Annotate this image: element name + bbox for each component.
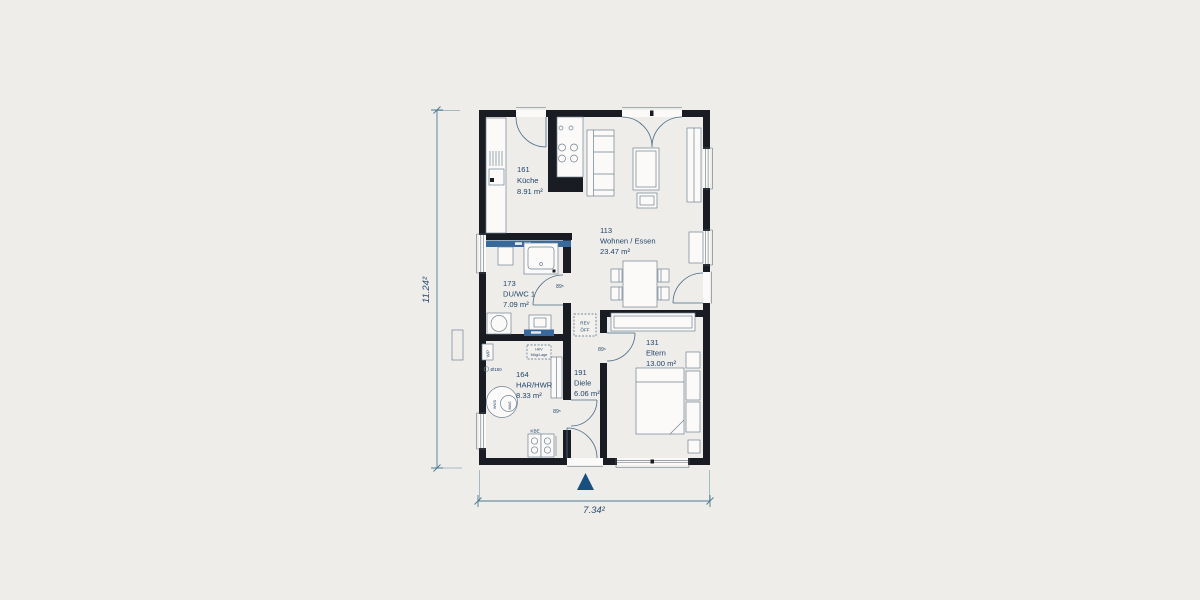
- mag-label: MAG: [508, 401, 512, 409]
- wws-label: WWS: [493, 399, 497, 409]
- svg-text:164: 164: [516, 370, 529, 379]
- svg-text:Wohnen / Essen: Wohnen / Essen: [600, 237, 656, 246]
- water-storage-tank: [487, 387, 518, 418]
- wc-toilet: [524, 315, 554, 336]
- svg-text:191: 191: [574, 368, 587, 377]
- hkv-label-line1: HKV: [535, 348, 543, 352]
- dining-table: [623, 261, 657, 307]
- door-width-label: 89⁵: [598, 347, 606, 353]
- kbe-label: KBE: [530, 429, 539, 434]
- entry-door-opening: [567, 458, 603, 467]
- door-swing: [622, 117, 682, 147]
- window: [703, 230, 713, 265]
- side-table: [637, 193, 657, 208]
- double-bed: [636, 368, 684, 434]
- svg-text:131: 131: [646, 338, 659, 347]
- dining-chair: [658, 287, 669, 300]
- dining-chair: [658, 269, 669, 282]
- nightstand: [688, 440, 700, 453]
- svg-text:Küche: Küche: [517, 176, 539, 185]
- bath-cabinet: [498, 247, 513, 265]
- sideboard: [687, 128, 701, 202]
- door-swing: [571, 400, 597, 426]
- window: [703, 148, 713, 189]
- room-label-diele: 191 Diele 6.06 m²: [574, 368, 600, 398]
- fixtures: [452, 241, 596, 458]
- rev-label-line1: REV: [580, 321, 590, 326]
- svg-text:161: 161: [517, 165, 530, 174]
- svg-text:13.00 m²: 13.00 m²: [646, 359, 676, 368]
- floor-plan: 11.24² 7.34² 161 Küche 8.91 m² 113 Wohne…: [0, 0, 1200, 600]
- door-swing: [607, 333, 635, 361]
- svg-text:8.91 m²: 8.91 m²: [517, 187, 543, 196]
- dimension-width: 7.34²: [475, 470, 714, 516]
- wp-label: WP: [486, 350, 491, 357]
- svg-text:HAR/HWR: HAR/HWR: [516, 381, 553, 390]
- svg-text:6.06 m²: 6.06 m²: [574, 389, 600, 398]
- dining-chair: [611, 287, 622, 300]
- door-width-label: 89⁵: [556, 284, 564, 290]
- nightstand: [686, 402, 700, 432]
- room-label-kueche: 161 Küche 8.91 m²: [517, 165, 543, 196]
- svg-text:Diele: Diele: [574, 379, 591, 388]
- svg-text:7.09 m²: 7.09 m²: [503, 300, 529, 309]
- room-label-wohnen-essen: 113 Wohnen / Essen 23.47 m²: [600, 226, 656, 256]
- hkv-label-line2: Mögl.Lage: [531, 353, 548, 357]
- cabinet: [689, 232, 703, 263]
- door-swing: [673, 273, 703, 303]
- door-swing: [567, 428, 597, 458]
- french-door-opening: [622, 108, 682, 118]
- dining-chair: [611, 269, 622, 282]
- width-dimension-label: 7.34²: [583, 505, 605, 516]
- svg-text:8.33 m²: 8.33 m²: [516, 391, 542, 400]
- terrace-door-opening: [703, 272, 712, 304]
- sink-dot: [490, 178, 494, 182]
- nightstand: [686, 352, 700, 368]
- svg-text:23.47 m²: 23.47 m²: [600, 247, 630, 256]
- window: [616, 458, 689, 468]
- duct-label: Ø150: [491, 367, 503, 372]
- washbasin: [524, 243, 558, 274]
- svg-text:Eltern: Eltern: [646, 349, 666, 358]
- entrance-marker: [577, 473, 594, 490]
- coffee-table: [633, 148, 659, 190]
- window: [477, 234, 487, 273]
- rev-label-line2: ÖFF: [580, 327, 589, 333]
- round-shower-tub: [487, 313, 511, 334]
- door-width-label: 89⁵: [553, 409, 561, 415]
- height-dimension-label: 11.24²: [421, 276, 432, 303]
- door-swing: [533, 275, 563, 305]
- wardrobe: [611, 313, 695, 331]
- heat-pump-outdoor-unit: [452, 330, 463, 360]
- svg-text:113: 113: [600, 226, 612, 235]
- room-label-har-hwr: 164 HAR/HWR 8.33 m²: [516, 370, 553, 400]
- room-label-duwc: 173 DU/WC 1 7.09 m²: [503, 279, 535, 309]
- nightstand: [686, 371, 700, 400]
- svg-text:DU/WC 1: DU/WC 1: [503, 290, 535, 299]
- sofa: [587, 130, 614, 196]
- svg-text:173: 173: [503, 279, 516, 288]
- washer-dryer-unit: [528, 434, 556, 457]
- window: [477, 413, 487, 449]
- kitchen-door-opening: [516, 108, 546, 118]
- door-swing: [516, 117, 546, 147]
- room-label-eltern: 131 Eltern 13.00 m²: [646, 338, 676, 368]
- kitchen-sink: [489, 169, 504, 185]
- dimension-height: 11.24²: [421, 107, 462, 472]
